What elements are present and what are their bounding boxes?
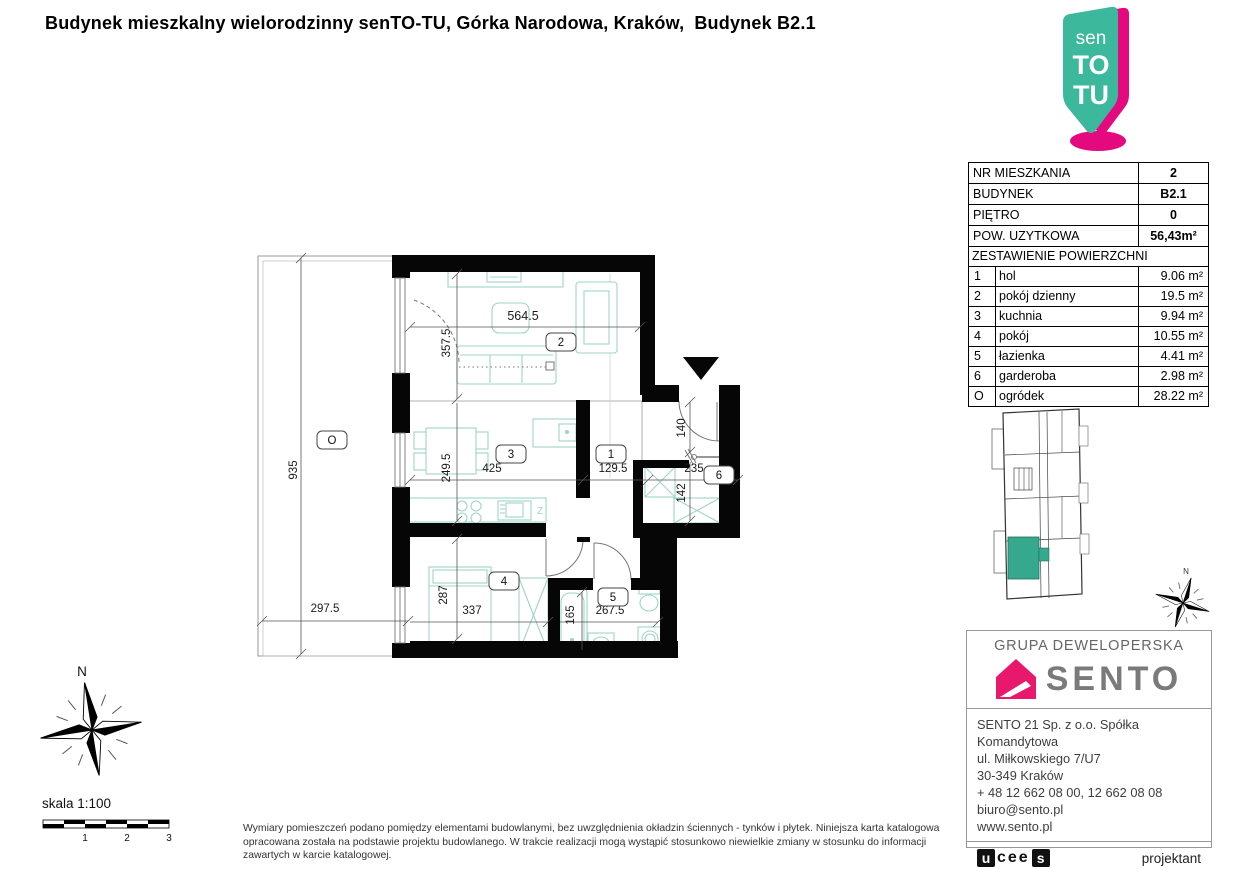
balcony-door-window — [392, 278, 410, 373]
garden-area — [258, 256, 404, 656]
address-line: + 48 12 662 08 00, 12 662 08 08 — [977, 784, 1201, 801]
room-label-bathroom: 5 — [598, 588, 628, 606]
sink-mark: Z — [537, 506, 543, 517]
designer-row: ucees projektant — [967, 841, 1211, 869]
site-highlighted-unit — [1008, 537, 1039, 579]
scale-bar: skala 1:100 1 2 3 — [42, 796, 172, 844]
sofa — [457, 346, 556, 384]
svg-text:4: 4 — [501, 576, 508, 588]
address-line: SENTO 21 Sp. z o.o. Spółka Komandytowa — [977, 716, 1201, 750]
svg-text:5: 5 — [610, 592, 616, 604]
address-line: www.sento.pl — [977, 818, 1201, 835]
bedroom-wardrobe — [519, 578, 548, 652]
room-label-living: 2 — [546, 333, 576, 351]
address-line: 30-349 Kraków — [977, 767, 1201, 784]
dim-bath-width: 267.5 — [596, 605, 625, 617]
ucees-u: u — [977, 849, 995, 867]
disclaimer-text: Wymiary pomieszczeń podano pomiędzy elem… — [243, 822, 940, 863]
dim-garden-height: 935 — [288, 460, 300, 479]
address-line: biuro@sento.pl — [977, 801, 1201, 818]
room-label-wardrobe: 6 — [704, 466, 734, 484]
svg-text:O: O — [328, 435, 337, 447]
room-label-hall: 1 — [596, 445, 626, 463]
dim-living-height: 357.5 — [441, 329, 453, 358]
dim-kitchen-height: 249.5 — [441, 454, 453, 483]
compass-north-label: N — [77, 664, 87, 679]
dim-bath-height: 165 — [565, 605, 577, 624]
developer-box: GRUPA DEWELOPERSKA SENTO SENTO 21 Sp. z … — [966, 630, 1212, 848]
svg-text:2: 2 — [558, 337, 564, 349]
bedroom-door-swing — [546, 539, 583, 576]
svg-text:1: 1 — [608, 449, 614, 461]
dim-garden-width: 297.5 — [311, 603, 340, 615]
address-line: ul. Miłkowskiego 7/U7 — [977, 750, 1201, 767]
windows — [392, 278, 410, 643]
scale-tick-3: 3 — [166, 833, 172, 844]
kitchen-window — [392, 433, 410, 487]
bed — [429, 567, 491, 650]
bathroom-door-swing — [594, 543, 631, 580]
dim-bedroom-height: 287 — [438, 585, 450, 604]
entrance-arrow — [683, 357, 719, 380]
dim-kitchen-width: 425 — [482, 463, 501, 475]
site-stairs — [1014, 468, 1032, 490]
ucees-s: s — [1032, 849, 1050, 867]
room-label-kitchen: 3 — [496, 445, 526, 463]
compass-rose: N — [33, 664, 148, 784]
svg-text:3: 3 — [508, 449, 514, 461]
dim-living-width: 564.5 — [507, 309, 538, 323]
room-label-garden: O — [317, 431, 347, 449]
kitchen-counter: Z — [409, 498, 546, 523]
developer-address: SENTO 21 Sp. z o.o. Spółka Komandytowa u… — [967, 708, 1211, 841]
dim-entry-height: 140 — [676, 418, 688, 437]
dim-bedroom-width: 337 — [462, 605, 481, 617]
ucees-logo: ucees — [977, 849, 1050, 867]
armchair — [576, 282, 617, 353]
svg-text:6: 6 — [716, 470, 722, 482]
bedroom-window — [392, 587, 410, 643]
sento-brand-text: SENTO — [1046, 660, 1183, 699]
catalog-card-page: Budynek mieszkalny wielorodzinny senTO-T… — [0, 0, 1235, 869]
room-label-bedroom: 4 — [489, 572, 519, 590]
scale-tick-2: 2 — [124, 833, 130, 844]
site-compass: N — [1148, 567, 1217, 636]
ucees-cee: cee — [996, 849, 1031, 867]
sento-house-icon — [996, 659, 1036, 699]
dim-wardrobe-width: 235 — [684, 463, 703, 475]
sento-logo: SENTO — [967, 656, 1211, 702]
toilet — [639, 588, 660, 611]
dim-wardrobe-height: 142 — [676, 483, 688, 502]
svg-text:N: N — [1183, 567, 1189, 576]
site-plan — [992, 409, 1089, 599]
developer-group-label: GRUPA DEWELOPERSKA — [967, 638, 1211, 654]
scale-label: skala 1:100 — [42, 796, 111, 811]
dim-hall-width: 129.5 — [599, 463, 628, 475]
designer-label: projektant — [1142, 851, 1201, 866]
scale-tick-1: 1 — [82, 833, 88, 844]
